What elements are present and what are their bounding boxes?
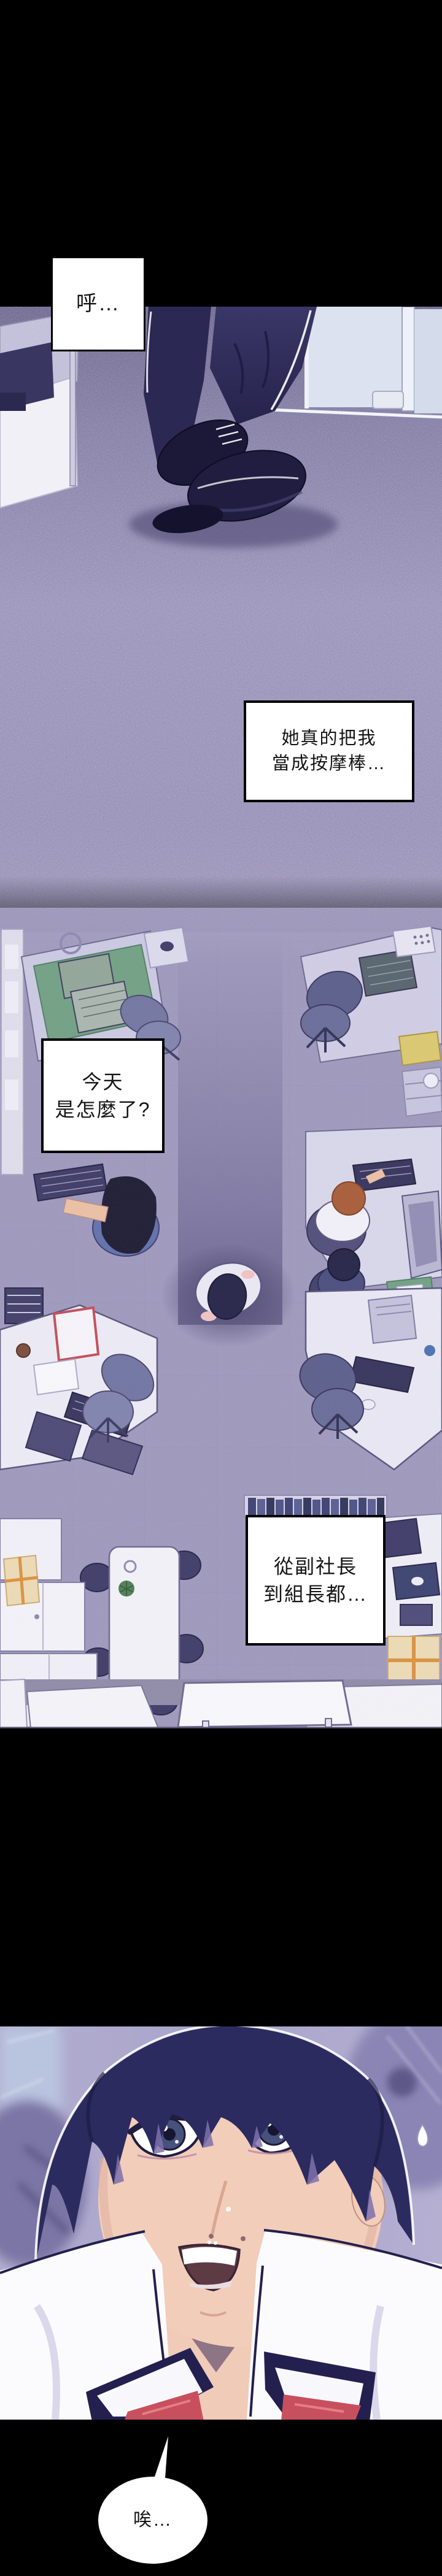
bubble-text-line2: 到組長都…	[263, 1581, 368, 1608]
comic-page: 呼… 她真的把我 當成按摩棒… 今天 是怎麼了? 從副社長 到組長都… 唉…	[0, 0, 442, 2576]
gutter-bottom	[0, 2420, 442, 2576]
window-pane-2	[414, 309, 442, 413]
narration-box-massage: 她真的把我 當成按摩棒…	[244, 700, 414, 802]
bubble-text-line2: 是怎麼了?	[55, 1096, 151, 1124]
bubble-text-line2: 當成按摩棒…	[272, 751, 386, 776]
bubble-text: 呼…	[76, 289, 120, 319]
door-stopper	[373, 391, 403, 408]
comic-artwork	[0, 0, 442, 2576]
speech-bubble-sigh-top: 呼…	[51, 256, 145, 351]
bubble-text: 唉…	[133, 2507, 173, 2533]
bubble-text-line1: 今天	[82, 1068, 123, 1096]
speech-bubble-sigh-bottom: 唉…	[98, 2477, 207, 2564]
bubble-text-line1: 從副社長	[274, 1553, 357, 1581]
narration-box-today: 今天 是怎麼了?	[41, 1038, 165, 1153]
bubble-text-line1: 她真的把我	[281, 726, 376, 751]
bg-window-blur	[0, 2026, 61, 2112]
bg-chair-wheel	[387, 2068, 417, 2097]
panel-face-closeup	[0, 2006, 442, 2421]
gutter-middle	[0, 1728, 442, 2026]
narration-box-bosses: 從副社長 到組長都…	[246, 1515, 386, 1646]
desk-pole	[70, 343, 76, 486]
